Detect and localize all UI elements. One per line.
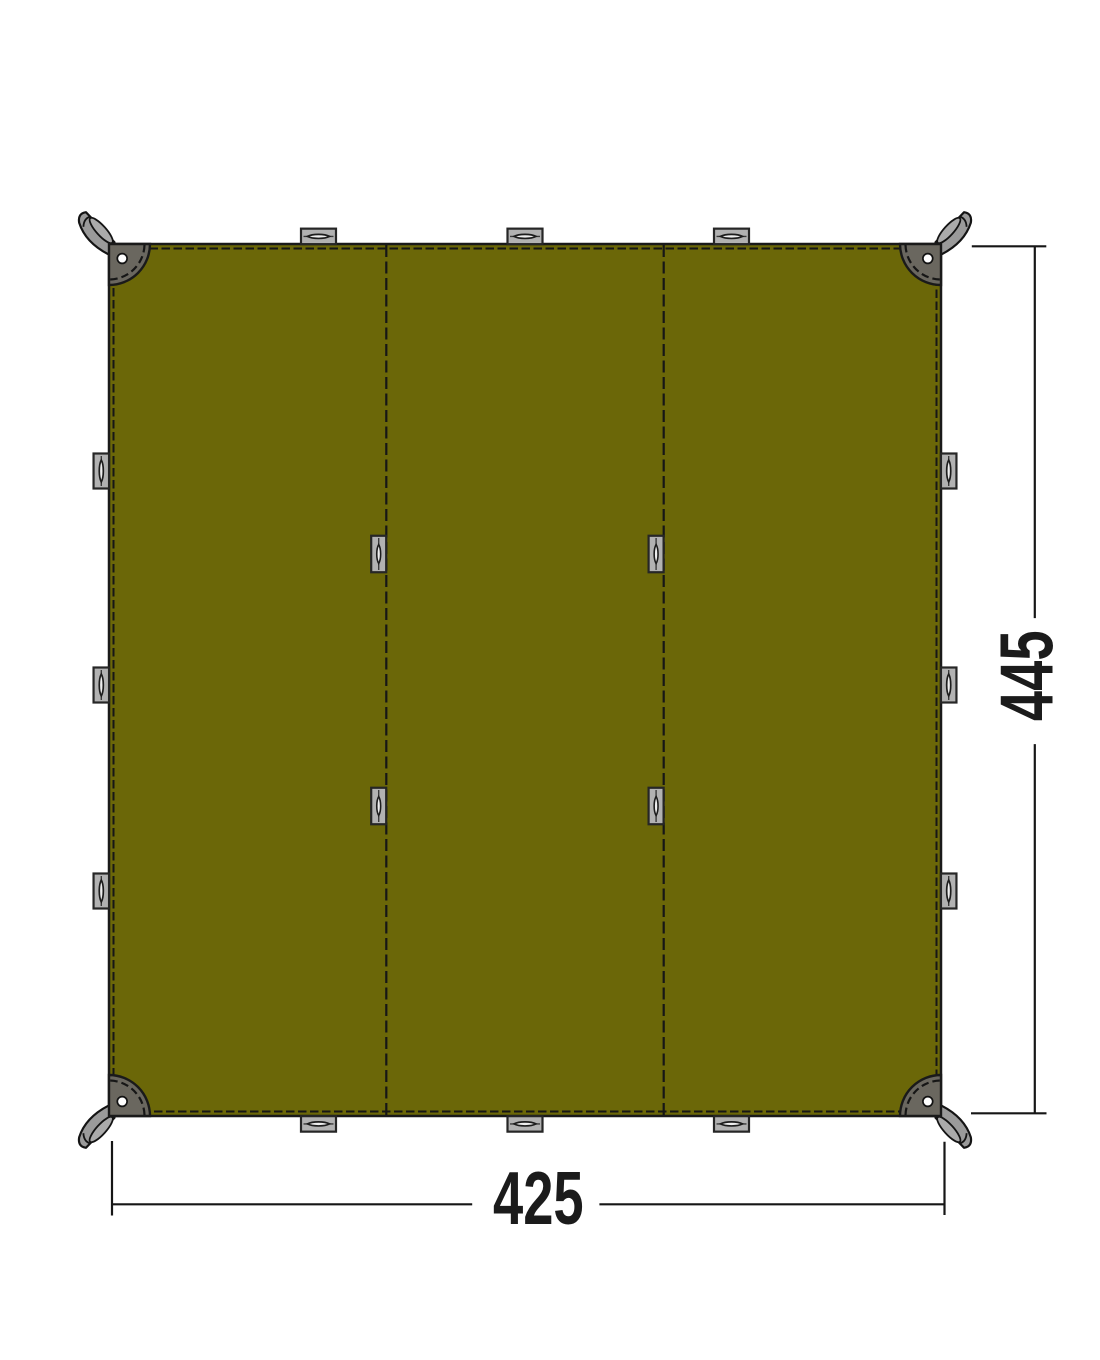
svg-text:445: 445 <box>984 630 1069 721</box>
svg-text:425: 425 <box>493 1155 584 1240</box>
